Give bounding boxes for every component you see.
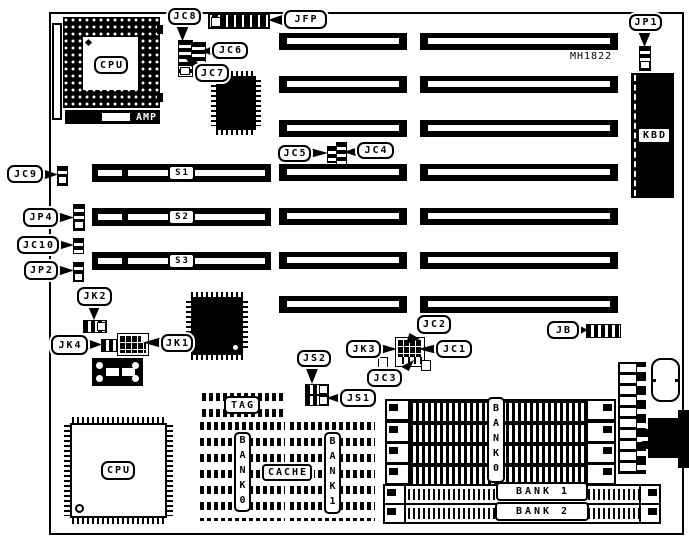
din-tab <box>642 429 649 437</box>
latch-mark <box>387 489 396 496</box>
cpu-chip-label: CPU <box>101 461 135 480</box>
isa-slot-long-6 <box>420 252 618 269</box>
latch-mark <box>603 404 612 411</box>
isa-slot-long-5 <box>420 208 618 225</box>
socket-side-bar <box>52 23 62 120</box>
simm-bank1-label: BANK 1 <box>496 482 588 501</box>
amp-bar: AMP <box>65 110 160 124</box>
pad-dot <box>132 375 139 382</box>
latch-mark <box>387 508 396 515</box>
isa-slot-short-4 <box>279 164 407 181</box>
simm-latch <box>639 503 661 524</box>
label-jc3: JC3 <box>367 369 402 387</box>
oscillator-block <box>92 358 143 386</box>
label-jfp: JFP <box>284 10 327 29</box>
jk4-connector <box>101 339 119 352</box>
kbd-chip-stripe <box>634 75 636 196</box>
slot-key <box>428 301 610 307</box>
jumper-cap <box>97 322 106 331</box>
chip-pins <box>243 301 248 351</box>
label-jc2: JC2 <box>417 315 451 334</box>
cache-bank1-label: BANK1 <box>324 432 341 514</box>
qfp-chip-top <box>216 76 256 130</box>
slot-key <box>428 125 610 131</box>
vlb-slot-s2: S2 <box>92 208 271 226</box>
slot-label-s3: S3 <box>168 253 195 269</box>
jumper-cap <box>74 273 83 281</box>
jumper-cap <box>319 385 328 394</box>
label-jc5: JC5 <box>278 145 311 162</box>
simm-bank0-label: BANK0 <box>487 397 505 483</box>
power-connector-pins <box>637 362 646 474</box>
motherboard-diagram: S1 S2 S3 CPU AMP JC8 JC6 JC7 JFP JP1 MH1… <box>0 0 689 541</box>
chip-pins <box>167 425 173 516</box>
isa-slot-short-6 <box>279 252 407 269</box>
isa-slot-short-5 <box>279 208 407 225</box>
pad-dot <box>96 375 103 382</box>
jumper-cap <box>141 336 146 342</box>
jc4-connector <box>336 142 347 165</box>
pin1-ring <box>75 504 84 513</box>
latch-mark <box>603 468 612 475</box>
socket-tab <box>157 25 163 34</box>
label-jb: JB <box>547 321 579 339</box>
isa-slot-long-4 <box>420 164 618 181</box>
amp-window <box>102 113 130 121</box>
slot-divider <box>122 255 128 267</box>
jumper-cap <box>640 61 650 69</box>
notch <box>652 379 656 382</box>
label-jc10: JC10 <box>17 236 59 254</box>
vlb-slot-s1: S1 <box>92 164 271 182</box>
din-tab <box>642 441 649 449</box>
latch-mark <box>389 426 398 433</box>
label-jp2: JP2 <box>24 261 58 280</box>
label-jk1: JK1 <box>161 334 193 352</box>
cache-bank0-label: BANK0 <box>234 432 251 512</box>
notch <box>675 379 679 382</box>
jk1-connector <box>118 334 148 355</box>
cpu-socket-label: CPU <box>94 56 128 74</box>
latch-mark <box>603 447 612 454</box>
latch-mark <box>648 489 657 496</box>
jc10-connector <box>73 238 84 254</box>
qfp-chip-mid <box>191 297 243 355</box>
slot-key <box>287 213 399 219</box>
simm-bank2-label: BANK 2 <box>495 502 589 521</box>
label-jc7: JC7 <box>195 64 229 82</box>
jumper-cap <box>211 17 221 27</box>
jb-connector <box>586 324 621 338</box>
slot-key <box>428 213 610 219</box>
osc-slot <box>106 368 119 376</box>
amp-label: AMP <box>136 112 157 123</box>
fuse-outline <box>651 358 680 402</box>
label-jc9: JC9 <box>7 165 43 183</box>
pin1-dot <box>233 345 238 350</box>
simm-latch <box>586 399 616 421</box>
slot-divider <box>122 211 128 223</box>
jumper-cap <box>58 176 67 184</box>
slot-divider <box>122 167 128 179</box>
slot-key <box>287 38 399 44</box>
label-jk3: JK3 <box>346 340 381 358</box>
jumper-cap <box>180 67 190 75</box>
isa-slot-short-7 <box>279 296 407 313</box>
latch-mark <box>389 447 398 454</box>
slot-label-s2: S2 <box>168 209 195 225</box>
din-keyboard-connector <box>648 418 681 458</box>
din-keyboard-connector <box>678 410 689 468</box>
isa-slot-long-3 <box>420 120 618 137</box>
slot-key <box>287 81 399 87</box>
label-jc1: JC1 <box>436 340 472 358</box>
isa-slot-short-2 <box>279 76 407 93</box>
latch-mark <box>648 508 657 515</box>
chip-pins <box>216 130 256 135</box>
isa-slot-short-1 <box>279 33 407 50</box>
pad-dot <box>96 362 103 369</box>
socket-tab <box>157 93 163 102</box>
slot-key <box>287 125 399 131</box>
osc-slot <box>122 368 135 376</box>
label-js2: JS2 <box>297 350 331 367</box>
slot-key <box>287 301 399 307</box>
isa-slot-long-7 <box>420 296 618 313</box>
slot-key <box>428 169 610 175</box>
latch-mark <box>389 468 398 475</box>
kbd-label: KBD <box>637 127 671 144</box>
slot-key <box>287 169 399 175</box>
label-jk2: JK2 <box>77 287 112 306</box>
vlb-slot-s3: S3 <box>92 252 271 270</box>
slot-key <box>428 38 610 44</box>
simm-latch <box>639 484 661 505</box>
chip-pins <box>72 518 165 524</box>
latch-mark <box>389 404 398 411</box>
slot-key <box>428 81 610 87</box>
slot-key <box>428 257 610 263</box>
label-jc6: JC6 <box>212 42 248 59</box>
label-jp4: JP4 <box>23 208 58 227</box>
jumper-cap <box>319 396 328 405</box>
jumper-cap <box>74 221 84 229</box>
latch-mark <box>603 426 612 433</box>
jumper-cap <box>421 360 431 371</box>
simm-latch <box>586 463 616 485</box>
label-jc4: JC4 <box>357 142 394 159</box>
chip-pins <box>191 355 243 360</box>
label-jp1: JP1 <box>629 14 662 31</box>
isa-slot-long-1 <box>420 33 618 50</box>
isa-slot-long-2 <box>420 76 618 93</box>
slot-key <box>287 257 399 263</box>
label-jk4: JK4 <box>51 335 88 355</box>
label-js1: JS1 <box>340 389 376 407</box>
jumper-cap <box>378 357 388 368</box>
simm-latch <box>586 442 616 464</box>
board-id-text: MH1822 <box>570 51 612 62</box>
cache-label: CACHE <box>262 464 312 481</box>
chip-pins <box>256 80 261 126</box>
simm-latch <box>586 421 616 443</box>
power-connector <box>618 362 638 474</box>
label-jc8: JC8 <box>168 8 201 25</box>
isa-slot-short-3 <box>279 120 407 137</box>
tag-label: TAG <box>224 396 260 414</box>
slot-label-s1: S1 <box>168 165 195 181</box>
